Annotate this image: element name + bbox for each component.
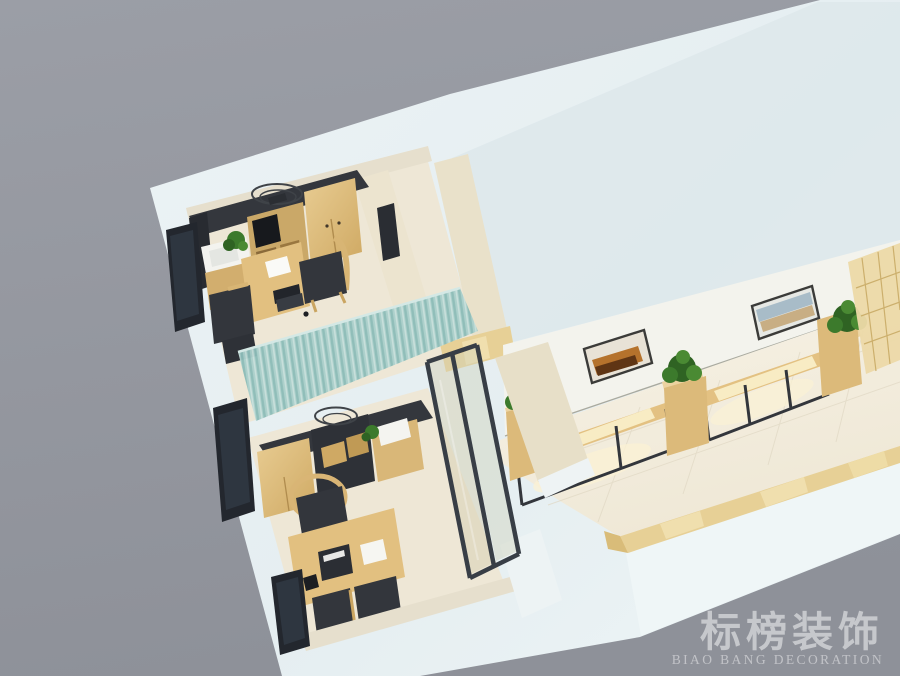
watermark-cn: 标榜装饰 bbox=[700, 609, 884, 655]
wardrobe-handle-right bbox=[337, 221, 340, 224]
desk-mouse bbox=[303, 311, 308, 316]
rendering-canvas: 标榜装饰 BIAO BANG DECORATION bbox=[0, 0, 900, 676]
watermark-en: BIAO BANG DECORATION bbox=[672, 652, 884, 667]
wood-wardrobe bbox=[304, 178, 362, 266]
wardrobe-handle-left bbox=[325, 224, 328, 227]
interior-3d-scene: 标榜装饰 BIAO BANG DECORATION bbox=[0, 0, 900, 676]
brand-watermark: 标榜装饰 BIAO BANG DECORATION bbox=[672, 609, 884, 667]
